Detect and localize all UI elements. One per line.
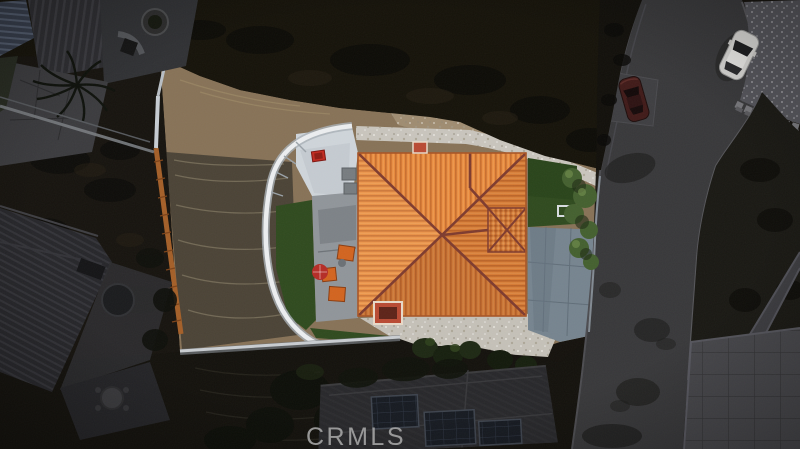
aerial-photo: CRMLS [0,0,800,449]
vignette [0,0,800,449]
watermark: CRMLS [306,423,406,449]
aerial-photo-canvas [0,0,800,449]
